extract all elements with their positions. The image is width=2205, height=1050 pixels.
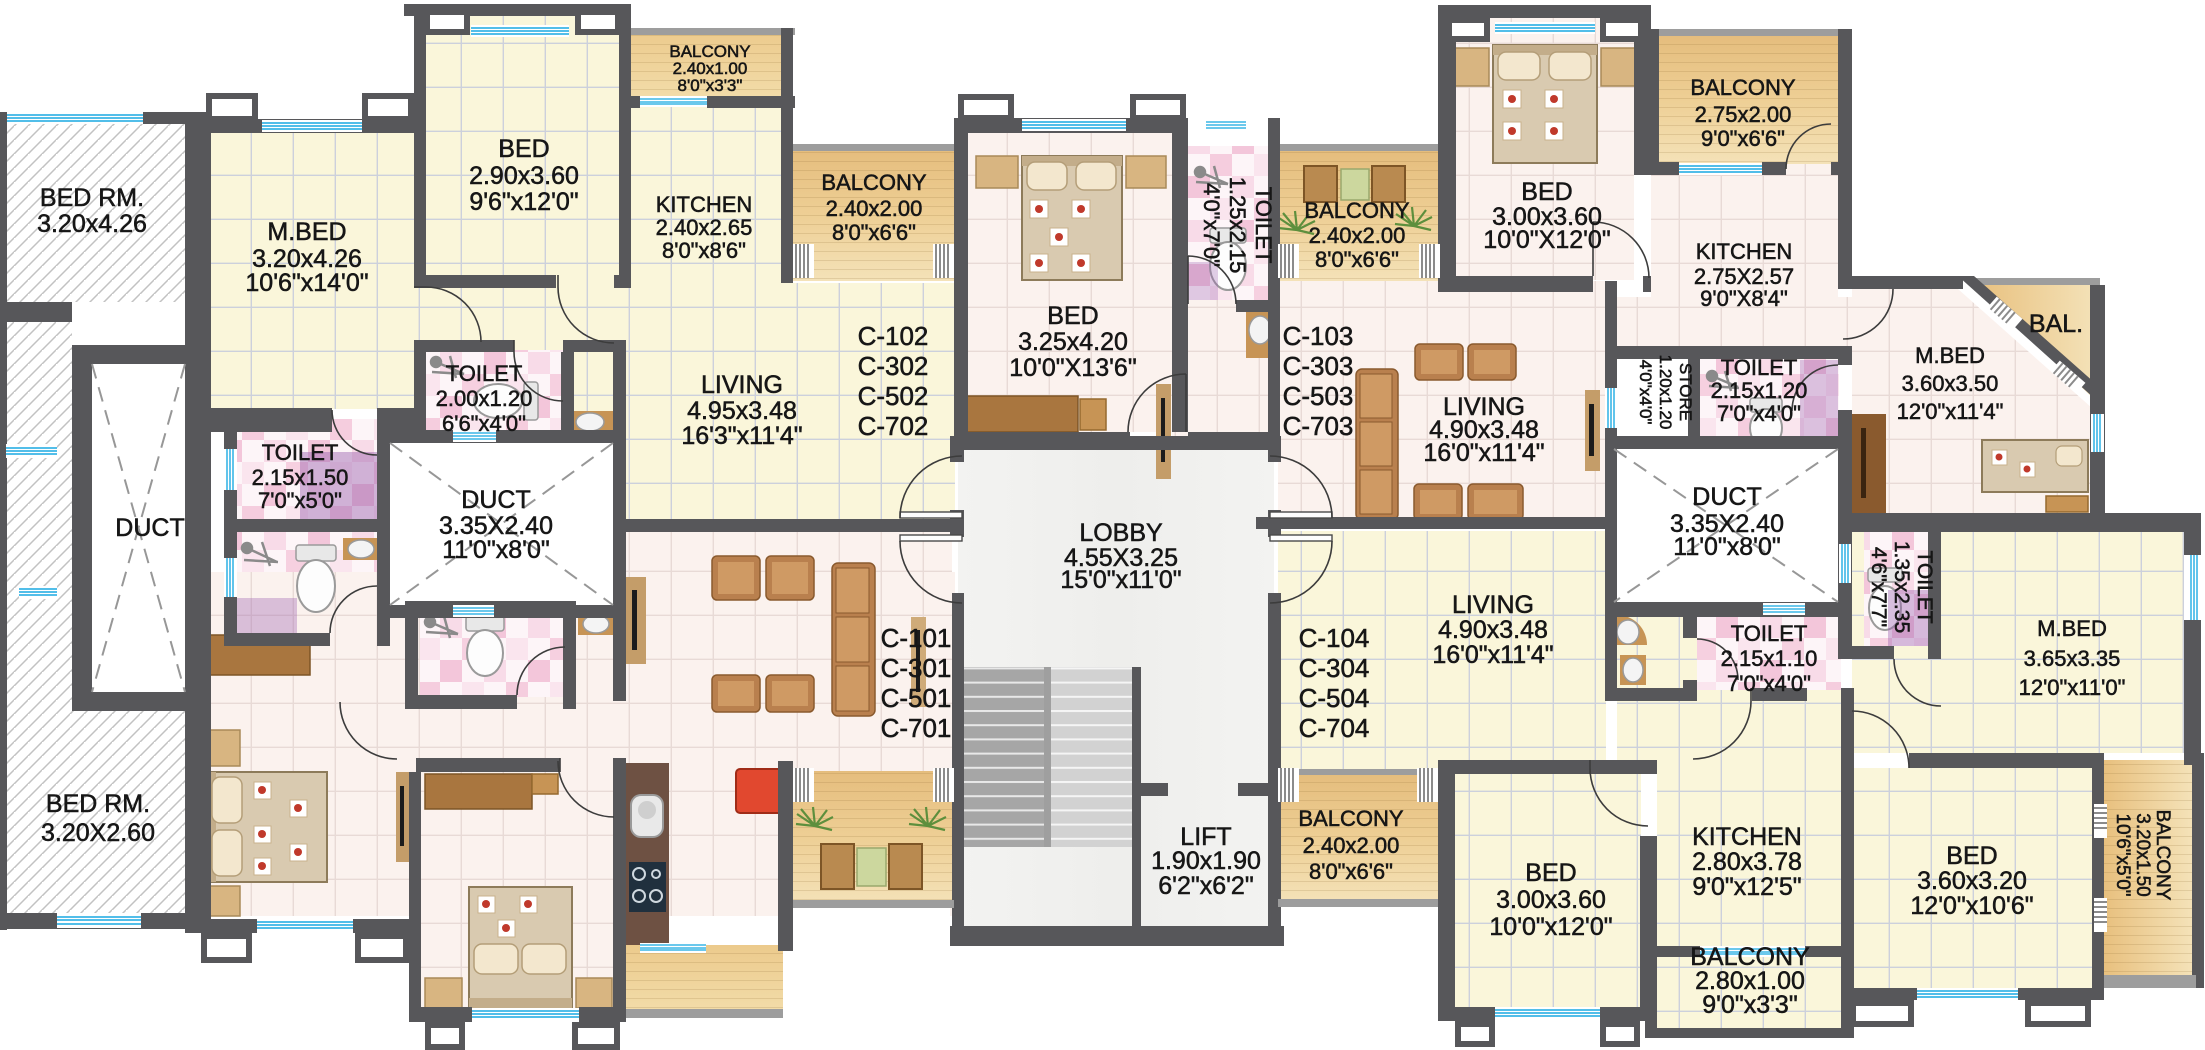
svg-text:2.15x1.20: 2.15x1.20 bbox=[1711, 378, 1808, 403]
svg-text:1.35x2.35: 1.35x2.35 bbox=[1890, 541, 1913, 633]
svg-text:2.15x1.50: 2.15x1.50 bbox=[252, 465, 349, 490]
svg-text:BALCONY: BALCONY bbox=[2152, 810, 2173, 901]
svg-text:4'6"x7'7": 4'6"x7'7" bbox=[1867, 547, 1890, 627]
svg-text:C-302: C-302 bbox=[858, 351, 929, 381]
svg-text:BAL.: BAL. bbox=[2029, 310, 2083, 338]
svg-text:4'0"x4'0": 4'0"x4'0" bbox=[1636, 360, 1655, 425]
svg-text:3.60x3.50: 3.60x3.50 bbox=[1902, 371, 1999, 396]
svg-text:C-101: C-101 bbox=[881, 623, 952, 653]
svg-text:LIVING: LIVING bbox=[701, 371, 783, 399]
svg-text:12'0"x11'4": 12'0"x11'4" bbox=[1897, 399, 2004, 424]
svg-text:2.40x2.00: 2.40x2.00 bbox=[1303, 833, 1400, 858]
svg-text:LIVING: LIVING bbox=[1452, 591, 1534, 619]
svg-text:12'0"x10'6": 12'0"x10'6" bbox=[1910, 892, 2033, 920]
svg-text:15'0"x11'0": 15'0"x11'0" bbox=[1060, 566, 1181, 594]
svg-text:2.00x1.20: 2.00x1.20 bbox=[436, 386, 533, 411]
svg-text:3.65x3.35: 3.65x3.35 bbox=[2024, 646, 2121, 671]
svg-text:BED: BED bbox=[498, 135, 549, 163]
svg-text:3.20X2.60: 3.20X2.60 bbox=[41, 819, 155, 847]
svg-text:C-704: C-704 bbox=[1299, 713, 1370, 743]
svg-text:BED: BED bbox=[1521, 178, 1572, 206]
svg-text:10'0"x12'0": 10'0"x12'0" bbox=[1489, 913, 1612, 941]
svg-text:1.25x2.15: 1.25x2.15 bbox=[1225, 177, 1250, 274]
svg-text:DUCT: DUCT bbox=[461, 486, 530, 514]
svg-text:16'0"x11'4": 16'0"x11'4" bbox=[1423, 439, 1544, 467]
svg-text:9'6"x12'0": 9'6"x12'0" bbox=[469, 188, 578, 216]
svg-text:3.20x1.50: 3.20x1.50 bbox=[2132, 813, 2153, 896]
svg-text:TOILET: TOILET bbox=[262, 440, 339, 465]
svg-text:C-103: C-103 bbox=[1283, 321, 1354, 351]
svg-text:C-301: C-301 bbox=[881, 653, 952, 683]
svg-text:TOILET: TOILET bbox=[446, 361, 523, 386]
svg-text:11'0"x8'0": 11'0"x8'0" bbox=[442, 536, 549, 564]
svg-text:9'0"X8'4": 9'0"X8'4" bbox=[1700, 286, 1788, 311]
svg-text:10'6"x5'0": 10'6"x5'0" bbox=[2112, 813, 2133, 896]
svg-text:2.75x2.00: 2.75x2.00 bbox=[1695, 102, 1792, 127]
svg-text:2.40x2.00: 2.40x2.00 bbox=[826, 196, 923, 221]
svg-text:LOBBY: LOBBY bbox=[1079, 519, 1163, 547]
svg-text:M.BED: M.BED bbox=[2037, 616, 2107, 641]
svg-text:BALCONY: BALCONY bbox=[821, 170, 926, 195]
svg-text:C-304: C-304 bbox=[1299, 653, 1370, 683]
svg-text:DUCT: DUCT bbox=[115, 514, 184, 542]
svg-text:C-303: C-303 bbox=[1283, 351, 1354, 381]
svg-text:C-503: C-503 bbox=[1283, 381, 1354, 411]
svg-text:C-703: C-703 bbox=[1283, 411, 1354, 441]
svg-text:BALCONY: BALCONY bbox=[1690, 75, 1795, 100]
svg-text:TOILET: TOILET bbox=[1721, 355, 1798, 380]
svg-text:DUCT: DUCT bbox=[1692, 483, 1761, 511]
svg-text:BALCONY: BALCONY bbox=[1298, 806, 1403, 831]
svg-text:KITCHEN: KITCHEN bbox=[1696, 239, 1793, 264]
svg-text:16'3"x11'4": 16'3"x11'4" bbox=[681, 422, 802, 450]
svg-text:6'6"x4'0": 6'6"x4'0" bbox=[442, 411, 526, 436]
svg-text:TOILET: TOILET bbox=[1251, 187, 1276, 264]
svg-text:3.00x3.60: 3.00x3.60 bbox=[1496, 886, 1606, 914]
svg-text:BALCONY: BALCONY bbox=[1304, 198, 1409, 223]
svg-text:BED: BED bbox=[1946, 842, 1997, 870]
svg-text:M.BED: M.BED bbox=[1915, 343, 1985, 368]
svg-text:2.40x2.00: 2.40x2.00 bbox=[1309, 223, 1406, 248]
svg-text:10'0"X13'6": 10'0"X13'6" bbox=[1009, 354, 1136, 382]
svg-text:10'6"x14'0": 10'6"x14'0" bbox=[245, 269, 368, 297]
svg-text:9'0"x12'5": 9'0"x12'5" bbox=[1692, 873, 1801, 901]
svg-text:4.90x3.48: 4.90x3.48 bbox=[1438, 616, 1548, 644]
svg-text:2.80x3.78: 2.80x3.78 bbox=[1692, 848, 1802, 876]
svg-text:9'0"x3'3": 9'0"x3'3" bbox=[1702, 991, 1797, 1019]
svg-text:C-702: C-702 bbox=[858, 411, 929, 441]
svg-text:8'0"x6'6": 8'0"x6'6" bbox=[832, 220, 916, 245]
svg-text:12'0"x11'0": 12'0"x11'0" bbox=[2019, 675, 2126, 700]
svg-text:STORE: STORE bbox=[1676, 363, 1695, 421]
svg-text:2.40x2.65: 2.40x2.65 bbox=[656, 215, 753, 240]
svg-text:1.90x1.90: 1.90x1.90 bbox=[1151, 847, 1261, 875]
svg-text:3.60x3.20: 3.60x3.20 bbox=[1917, 867, 2027, 895]
svg-text:C-501: C-501 bbox=[881, 683, 952, 713]
svg-text:2.15x1.10: 2.15x1.10 bbox=[1721, 646, 1818, 671]
svg-text:9'0"x6'6": 9'0"x6'6" bbox=[1701, 126, 1785, 151]
svg-text:8'0"x6'6": 8'0"x6'6" bbox=[1315, 247, 1399, 272]
svg-text:6'2"x6'2": 6'2"x6'2" bbox=[1158, 872, 1253, 900]
svg-text:8'0"x3'3": 8'0"x3'3" bbox=[678, 76, 743, 95]
svg-text:TOILET: TOILET bbox=[1913, 550, 1936, 623]
svg-text:8'0"x6'6": 8'0"x6'6" bbox=[1309, 859, 1393, 884]
svg-text:11'0"x8'0": 11'0"x8'0" bbox=[1673, 533, 1780, 561]
svg-text:KITCHEN: KITCHEN bbox=[656, 192, 753, 217]
svg-text:TOILET: TOILET bbox=[1731, 621, 1808, 646]
svg-text:BED RM.: BED RM. bbox=[46, 790, 150, 818]
svg-text:BED: BED bbox=[1047, 302, 1098, 330]
svg-text:C-102: C-102 bbox=[858, 321, 929, 351]
svg-text:7'0"x4'0": 7'0"x4'0" bbox=[1727, 671, 1811, 696]
svg-text:M.BED: M.BED bbox=[267, 218, 346, 246]
svg-text:2.90x3.60: 2.90x3.60 bbox=[469, 162, 579, 190]
svg-text:C-104: C-104 bbox=[1299, 623, 1370, 653]
svg-text:7'0"x4'0": 7'0"x4'0" bbox=[1717, 401, 1801, 426]
svg-text:C-701: C-701 bbox=[881, 713, 952, 743]
svg-text:7'0"x5'0": 7'0"x5'0" bbox=[258, 488, 342, 513]
svg-text:1.20x1.20: 1.20x1.20 bbox=[1656, 355, 1675, 430]
svg-text:4.95x3.48: 4.95x3.48 bbox=[687, 397, 797, 425]
svg-text:16'0"x11'4": 16'0"x11'4" bbox=[1432, 641, 1553, 669]
svg-text:3.20x4.26: 3.20x4.26 bbox=[37, 210, 147, 238]
svg-text:BED RM.: BED RM. bbox=[40, 184, 144, 212]
svg-text:BED: BED bbox=[1525, 859, 1576, 887]
svg-text:4'0"x7'0": 4'0"x7'0" bbox=[1199, 183, 1224, 267]
svg-text:3.25x4.20: 3.25x4.20 bbox=[1018, 328, 1128, 356]
svg-text:KITCHEN: KITCHEN bbox=[1692, 823, 1802, 851]
svg-text:C-504: C-504 bbox=[1299, 683, 1370, 713]
svg-text:C-502: C-502 bbox=[858, 381, 929, 411]
svg-text:8'0"x8'6": 8'0"x8'6" bbox=[662, 238, 746, 263]
svg-text:10'0"X12'0": 10'0"X12'0" bbox=[1483, 226, 1610, 254]
